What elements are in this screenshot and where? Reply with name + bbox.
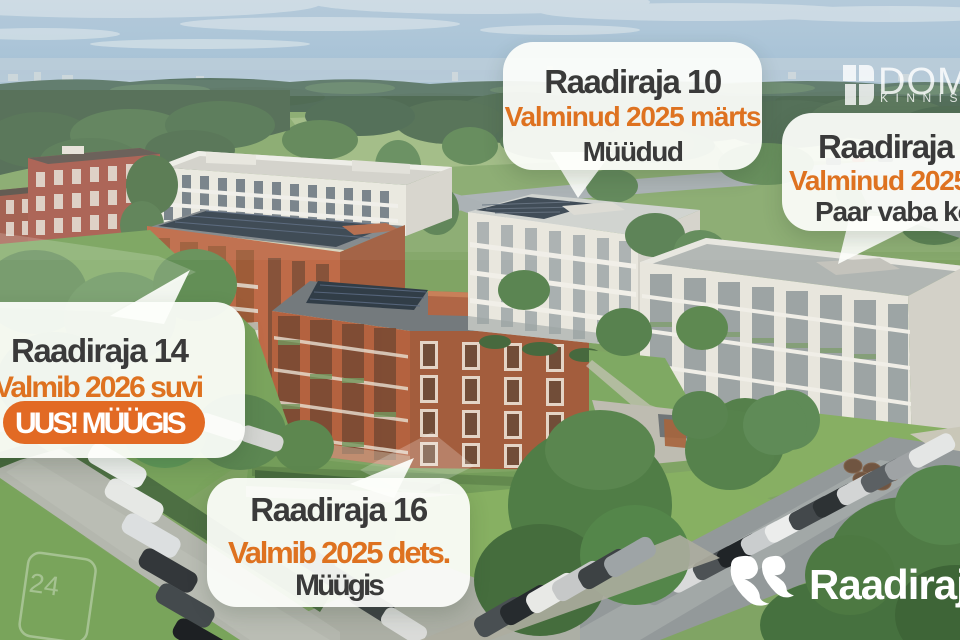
svg-text:24: 24: [27, 568, 61, 602]
